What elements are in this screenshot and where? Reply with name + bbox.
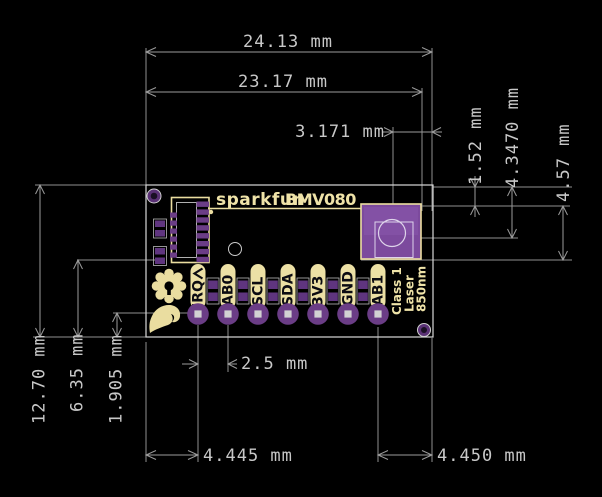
pin-label: GND xyxy=(341,271,357,306)
dim-text-sensor-height: 4.57 mm xyxy=(554,123,574,202)
mounting-hole-top-left xyxy=(147,189,161,203)
dim-text-inner-width: 23.17 mm xyxy=(238,72,328,92)
pcb-dimension-drawing: sparkfun BMV080 Class 1 Laser 850nm xyxy=(0,0,602,497)
pin-label: AB1 xyxy=(371,275,387,306)
dim-text-pin-pitch: 2.5 mm xyxy=(241,354,308,374)
dim-text-sensor-center: 4.3470 mm xyxy=(503,87,523,188)
dim-text-overall-height: 12.70 mm xyxy=(30,334,50,424)
dim-text-centerline: 6.35 mm xyxy=(68,333,88,412)
pin-gnd: GND xyxy=(337,264,359,325)
laser-marking-line3: 850nm xyxy=(415,266,429,312)
mounting-hole-bottom-right xyxy=(418,324,431,337)
pin1-dot xyxy=(209,210,213,214)
dim-text-pin-row: 1.905 mm xyxy=(107,334,127,424)
bmv080-sensor xyxy=(361,204,421,259)
dim-text-first-pin: 4.445 mm xyxy=(203,446,293,466)
product-silkscreen: BMV080 xyxy=(285,190,356,209)
pin-label: SCL xyxy=(251,277,267,306)
dim-text-sensor-top: 1.52 mm xyxy=(466,106,486,185)
drawing-canvas: sparkfun BMV080 Class 1 Laser 850nm xyxy=(0,0,602,497)
dim-text-overall-width: 24.13 mm xyxy=(243,32,333,52)
pin-label: 3V3 xyxy=(311,276,327,306)
pin-label: SDA xyxy=(281,273,297,306)
dim-text-last-pin: 4.450 mm xyxy=(437,446,527,466)
pin-label: AB0 xyxy=(221,274,237,306)
dim-text-sensor-offset: 3.171 mm xyxy=(295,122,385,142)
